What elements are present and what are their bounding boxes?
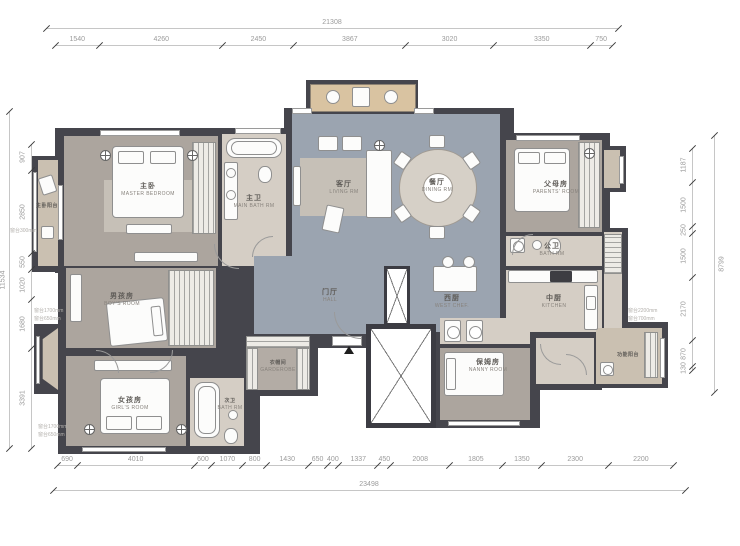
- room-label-kitchen: 中厨 KITCHEN: [542, 294, 567, 310]
- dim-label: 600: [197, 456, 209, 463]
- window: [235, 128, 281, 134]
- window: [33, 172, 37, 252]
- plan-shape: 西厨: [435, 294, 469, 303]
- plan-shape: 窗台650mm: [38, 432, 67, 440]
- dining-chair: [429, 135, 445, 148]
- dim-line: [714, 135, 715, 392]
- plan-shape: LIVING RM: [329, 189, 358, 196]
- room-label-cloak: 衣帽间 GARDEROBE: [260, 360, 296, 373]
- dim-line: [55, 45, 612, 46]
- dim-label: 750: [595, 36, 607, 43]
- dim-label: 1337: [350, 456, 366, 463]
- dim-label: 4010: [128, 456, 144, 463]
- dim-label: 8799: [719, 256, 726, 272]
- girl-pillow: [106, 416, 132, 430]
- bathtub-second-inner: [198, 386, 216, 434]
- dim-label: 2850: [20, 204, 27, 220]
- plan-shape: WEST CHEF.: [435, 303, 469, 310]
- bathtub-main-inner: [231, 141, 277, 155]
- plan-shape: 主卧阳台: [36, 203, 58, 210]
- dim-label: 550: [20, 256, 27, 268]
- bar-stool: [463, 256, 475, 268]
- dim-label: 1680: [20, 317, 27, 333]
- cloak-wardrobe-left: [246, 348, 258, 390]
- dim-label: 690: [61, 456, 73, 463]
- dim-label: 1187: [681, 158, 688, 173]
- dim-label: 870: [681, 348, 688, 360]
- dim-label: 11534: [0, 270, 7, 289]
- room-label-master: 主卧 MASTER BEDROOM: [121, 182, 175, 198]
- entry-arrow-icon: [344, 346, 354, 354]
- girl-pillow: [136, 416, 162, 430]
- room-label-func-balcony: 功能阳台: [617, 352, 639, 359]
- nanny-pillow: [446, 358, 456, 390]
- plan-shape: NANNY ROOM: [469, 367, 507, 374]
- window: [414, 108, 434, 114]
- plan-shape: 客厅: [329, 180, 358, 189]
- plan-shape: BATH RM: [218, 405, 243, 412]
- pantry-cabinet: [604, 234, 622, 274]
- room-label-public-bath: 公卫 BATH RM: [540, 242, 565, 258]
- plan-shape: PARENTS' ROOM: [533, 189, 579, 196]
- armchair: [342, 136, 362, 151]
- window: [36, 336, 40, 384]
- stove-icon: [550, 271, 572, 282]
- window: [82, 447, 166, 452]
- window: [660, 338, 665, 378]
- floor-lamp-icon: [374, 140, 385, 151]
- parents-pillow: [518, 152, 540, 164]
- dim-label: 130: [681, 362, 688, 374]
- armchair: [318, 136, 338, 151]
- dim-line: [9, 111, 10, 448]
- dim-label: 3391: [20, 391, 27, 407]
- dim-label: 1805: [468, 456, 484, 463]
- plan-shape: 功能阳台: [617, 352, 639, 359]
- toilet-icon: [258, 166, 272, 183]
- dim-label: 1540: [69, 36, 85, 43]
- dim-line: [46, 28, 618, 29]
- dim-label: 2008: [412, 456, 428, 463]
- balcony-cabinet: [644, 332, 658, 378]
- sofa: [366, 150, 392, 218]
- window: [619, 156, 624, 184]
- master-pillow-left: [118, 151, 144, 164]
- dim-label: 650: [312, 456, 324, 463]
- dim-label: 1070: [220, 456, 236, 463]
- plan-shape: 公卫: [540, 242, 565, 251]
- window: [516, 135, 580, 141]
- dim-label: 3350: [534, 36, 550, 43]
- kitchen-sink-icon: [586, 296, 596, 310]
- floor-right-bay: [604, 150, 620, 188]
- wall-lamp-icon: [176, 424, 187, 435]
- washer-drum: [603, 365, 613, 375]
- plan-shape: 窗台650mm: [34, 316, 63, 324]
- room-label-west-kitchen: 西厨 WEST CHEF.: [435, 294, 469, 310]
- room-label-girl: 女孩房 GIRL'S ROOM: [111, 396, 148, 412]
- plan-shape: 主卫: [234, 194, 275, 203]
- dim-label: 250: [681, 224, 688, 236]
- room-label-second-bath: 次卫 BATH RM: [218, 398, 243, 411]
- plan-shape: KITCHEN: [542, 303, 567, 310]
- parents-pillow: [544, 152, 566, 164]
- plan-shape: 保姆房: [469, 358, 507, 367]
- dim-label: 400: [327, 456, 339, 463]
- dim-label: 1500: [681, 197, 688, 213]
- plan-shape: 窗台1700mm: [34, 308, 63, 316]
- dim-label: 800: [249, 456, 261, 463]
- plan-shape: MAIN BATH RM: [234, 203, 275, 210]
- dim-label: 3020: [442, 36, 458, 43]
- plan-shape: 窗台2200mm: [628, 308, 657, 316]
- wall-lamp-icon: [187, 150, 198, 161]
- plan-shape: GIRL'S ROOM: [111, 405, 148, 412]
- dim-label: 2300: [567, 456, 583, 463]
- dining-chair: [429, 226, 445, 239]
- console-cabinet: [352, 87, 370, 107]
- dim-label: 1430: [279, 456, 295, 463]
- wall-lamp-icon: [84, 424, 95, 435]
- plan-shape: 父母房: [533, 180, 579, 189]
- dim-label: 3867: [342, 36, 358, 43]
- dim-label: 2170: [681, 301, 688, 317]
- washer-drum: [447, 326, 460, 339]
- cloak-wardrobe-right: [296, 348, 310, 390]
- dim-label: 450: [378, 456, 390, 463]
- room-label-hall: 门厅 HALL: [322, 288, 338, 304]
- window: [448, 421, 520, 426]
- plan-shape: 女孩房: [111, 396, 148, 405]
- plan-shape: DINING RM: [422, 187, 452, 194]
- plan-shape: 中厨: [542, 294, 567, 303]
- tv-console: [293, 166, 301, 206]
- room-label-boy: 男孩房 BOY'S ROOM: [104, 292, 140, 308]
- sill-annotation: 窗台1700mm 窗台650mm: [38, 424, 67, 439]
- console-decor: [384, 90, 398, 104]
- dim-label: 907: [20, 151, 27, 163]
- dim-line: [57, 465, 673, 466]
- duct-shaft: [384, 266, 410, 326]
- cloak-wardrobe-top: [246, 336, 310, 348]
- console-decor: [326, 90, 340, 104]
- plan-shape: HALL: [322, 297, 338, 304]
- dim-label: 23498: [359, 481, 378, 488]
- elevator-shaft: [366, 324, 436, 428]
- plan-shape: 门厅: [322, 288, 338, 297]
- window: [58, 185, 63, 240]
- dim-line: [53, 490, 685, 491]
- dim-label: 1500: [681, 248, 688, 264]
- window: [292, 108, 312, 114]
- floor-plan-canvas: 主卧阳台 主卧 MASTER BEDROOM 主卫 MAIN BATH RM 客…: [0, 0, 740, 546]
- dim-label: 1350: [514, 456, 530, 463]
- sill-annotation: 窗台300mm: [10, 228, 37, 236]
- plan-shape: BATH RM: [540, 251, 565, 258]
- room-label-dining: 餐厅 DINING RM: [422, 178, 452, 194]
- room-label-parents: 父母房 PARENTS' ROOM: [533, 180, 579, 196]
- plan-shape: 窗台700mm: [628, 316, 657, 324]
- window: [100, 130, 180, 136]
- wall-lamp-icon: [100, 150, 111, 161]
- room-label-master-balcony: 主卧阳台: [36, 203, 58, 210]
- sink-icon: [228, 410, 238, 420]
- plan-shape: BOY'S ROOM: [104, 301, 140, 308]
- plan-shape: 主卧: [121, 182, 175, 191]
- island-counter: [433, 266, 477, 292]
- bar-stool: [442, 256, 454, 268]
- dim-label: 2450: [251, 36, 267, 43]
- dim-label: 4260: [153, 36, 169, 43]
- room-label-nanny: 保姆房 NANNY ROOM: [469, 358, 507, 374]
- room-label-main-bath: 主卫 MAIN BATH RM: [234, 194, 275, 210]
- dim-label: 2200: [633, 456, 649, 463]
- dim-line: [31, 144, 32, 448]
- plan-shape: MASTER BEDROOM: [121, 191, 175, 198]
- plan-shape: 男孩房: [104, 292, 140, 301]
- boy-desk: [70, 274, 82, 322]
- master-foot-bench: [126, 224, 172, 234]
- plan-shape: GARDEROBE: [260, 367, 296, 374]
- washer-drum: [469, 326, 482, 339]
- sink-icon: [226, 168, 236, 178]
- plan-shape: 窗台1700mm: [38, 424, 67, 432]
- sill-annotation: 窗台1700mm 窗台650mm: [34, 308, 63, 323]
- plan-shape: 窗台300mm: [10, 228, 37, 236]
- balcony-table: [41, 226, 54, 239]
- boy-wardrobe: [168, 270, 214, 346]
- master-pillow-right: [150, 151, 176, 164]
- toilet-icon: [224, 428, 238, 444]
- sill-annotation: 窗台2200mm 窗台700mm: [628, 308, 657, 323]
- decor-plant-icon: [584, 148, 595, 159]
- master-dresser: [134, 252, 198, 262]
- dim-label: 1020: [20, 277, 27, 293]
- room-label-living: 客厅 LIVING RM: [329, 180, 358, 196]
- dim-label: 21308: [322, 19, 341, 26]
- plan-shape: 餐厅: [422, 178, 452, 187]
